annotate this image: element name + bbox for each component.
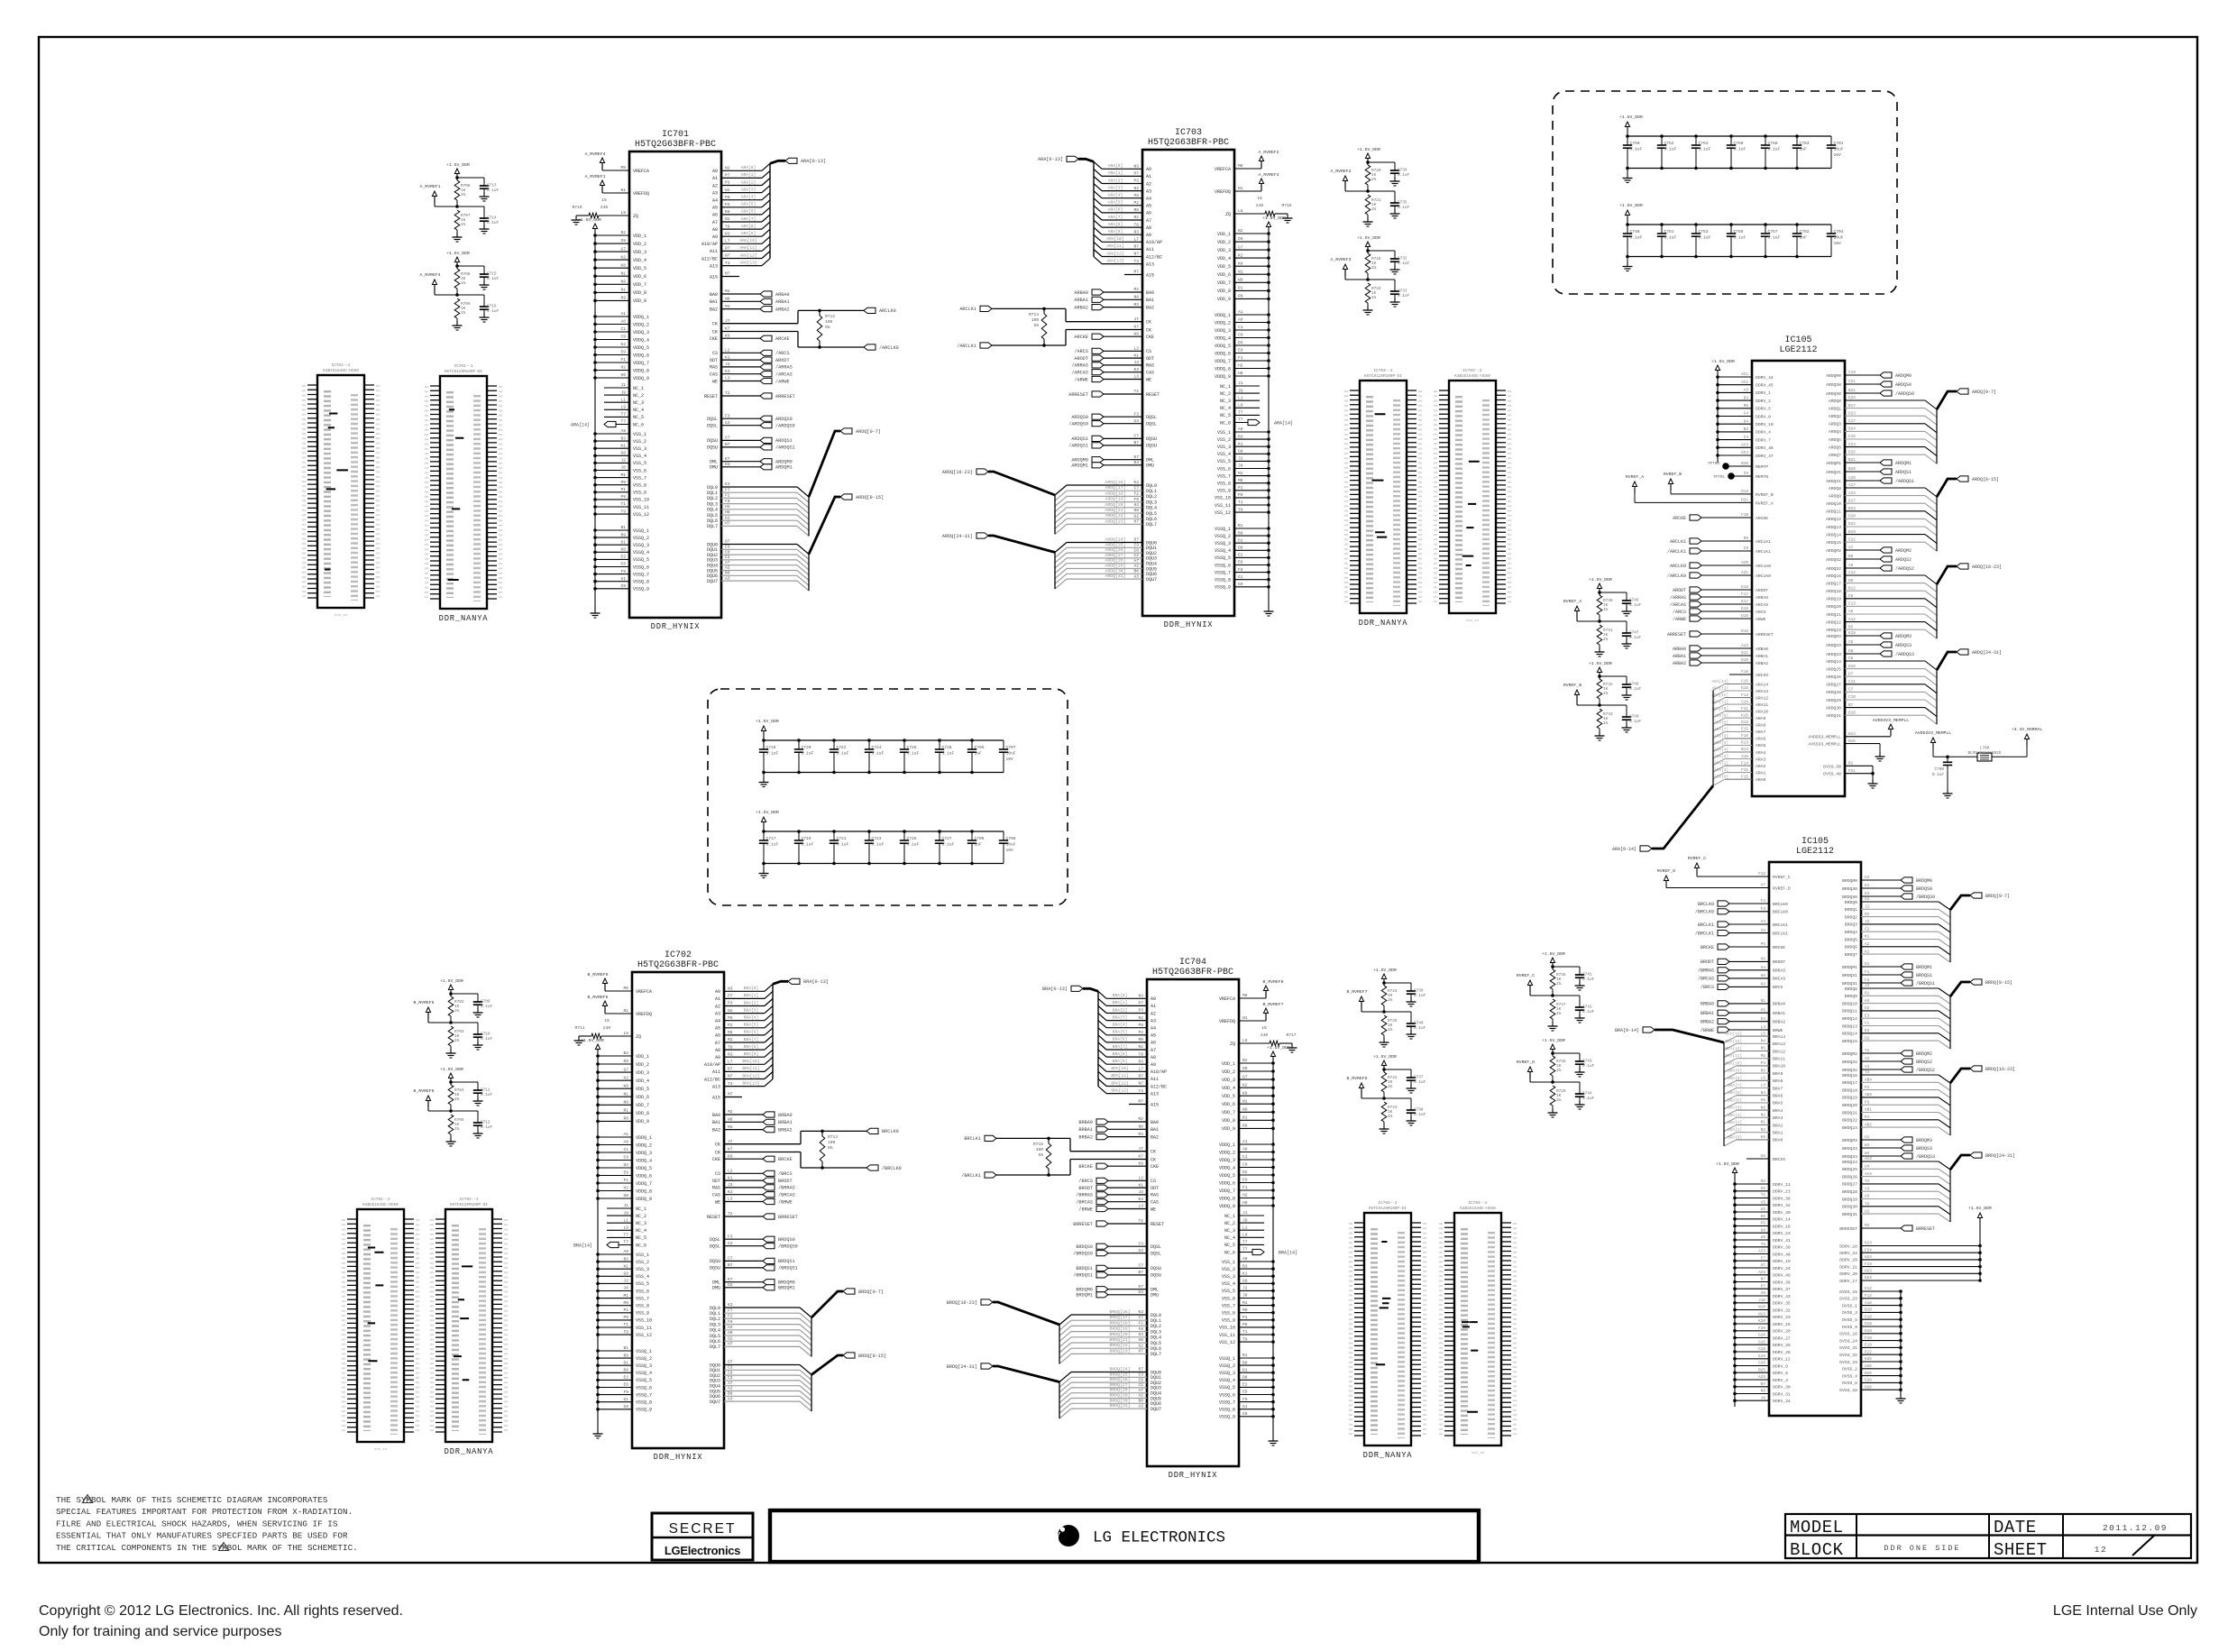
svg-text:AB3: AB3 [1865,1093,1872,1097]
svg-text:N1: N1 [620,271,626,276]
svg-text:ARA[9]: ARA[9] [1714,714,1728,719]
svg-text:DML: DML [1151,1288,1159,1293]
svg-text:C2: C2 [725,555,730,560]
svg-text:E12: E12 [1865,1287,1872,1291]
svg-text:N3: N3 [1133,164,1139,170]
svg-text:BRA[14]: BRA[14] [573,1243,592,1248]
svg-text:IC704--1: IC704--1 [1378,1201,1397,1206]
svg-text:DQSL: DQSL [1146,415,1157,420]
svg-text:VDD_3: VDD_3 [636,1070,649,1076]
svg-text:DQSU: DQSU [710,1259,720,1264]
svg-text:BRA[2]: BRA[2] [1113,1007,1128,1013]
svg-text:CAS: CAS [1146,371,1154,376]
svg-text:H6: H6 [1761,958,1766,962]
svg-text:VSS_9: VSS_9 [1217,489,1231,494]
svg-text:P6: P6 [1761,942,1766,947]
svg-text:5%: 5% [1033,323,1039,328]
svg-text:C704: C704 [1834,229,1844,234]
svg-text:B2: B2 [623,1051,628,1056]
svg-text:M1: M1 [1238,471,1243,476]
svg-text:BRDQM0: BRDQM0 [1842,878,1857,884]
svg-text:A2: A2 [1146,181,1151,187]
svg-text:M7: M7 [728,1092,733,1097]
svg-text:P2: P2 [725,202,730,207]
svg-text:VSSQ_4: VSSQ_4 [1215,548,1231,554]
svg-text:VSS_8: VSS_8 [633,483,646,489]
svg-text:VDDQ_3: VDDQ_3 [633,330,649,335]
svg-text:0.1uF: 0.1uF [1398,206,1410,210]
svg-text:LGE2112: LGE2112 [1796,847,1834,857]
svg-text:VDDQ_7: VDDQ_7 [1219,1189,1235,1194]
svg-text:D3: D3 [728,1282,733,1288]
svg-text:D26: D26 [1865,1385,1872,1390]
svg-text:P8: P8 [1138,1023,1143,1028]
svg-text:VSS_1: VSS_1 [636,1253,649,1258]
svg-text:DQU7: DQU7 [707,579,718,584]
svg-text:240: 240 [1256,203,1264,208]
svg-text:A1: A1 [1151,1004,1156,1009]
svg-text:R8: R8 [725,209,730,215]
svg-text:ARBA2: ARBA2 [775,307,790,312]
svg-text:DDRV_16: DDRV_16 [1839,1244,1857,1249]
svg-text:F15: F15 [1741,775,1748,779]
svg-text:NC_4: NC_4 [1224,1235,1235,1241]
svg-text:N7: N7 [725,253,730,259]
svg-text:ARDQ13: ARDQ13 [1826,525,1841,530]
svg-text:ARDQ[16]: ARDQ[16] [1105,480,1125,485]
svg-text:RVREF_B: RVREF_B [1756,492,1774,498]
svg-text:BRDQ[28]: BRDQ[28] [1109,1388,1130,1393]
svg-text:B_RVREF8: B_RVREF8 [1262,979,1283,985]
svg-text:ARA12: ARA12 [1756,695,1768,701]
svg-text:A4: A4 [712,198,718,204]
svg-text:VSS_6: VSS_6 [1217,466,1231,472]
svg-text:DDRV_37: DDRV_37 [1773,1287,1791,1292]
svg-text:N1: N1 [623,1092,628,1097]
svg-text:ARCKE: ARCKE [1756,516,1768,521]
svg-text:VDDQ_5: VDDQ_5 [636,1166,652,1171]
svg-text:J7: J7 [1138,1146,1143,1152]
svg-text:BRDQ[24]: BRDQ[24] [1109,1367,1130,1372]
svg-text:E2: E2 [1238,553,1243,558]
svg-text:CK: CK [1146,320,1151,326]
svg-text:ARA[13]: ARA[13] [1712,687,1728,692]
svg-text:R1: R1 [620,288,626,293]
svg-text:A12/BC: A12/BC [1146,254,1162,260]
svg-text:DDRV_49: DDRV_49 [1773,1273,1791,1279]
svg-text:MEMTN: MEMTN [1756,474,1768,480]
svg-text:K2: K2 [623,1075,628,1080]
svg-text:/ARWE: /ARWE [1074,377,1088,382]
svg-text:0.1uF: 0.1uF [487,277,500,281]
svg-text:BRCKE: BRCKE [1078,1164,1093,1170]
svg-text:BRDQ4: BRDQ4 [1845,930,1857,935]
svg-text:VSSQ_5: VSSQ_5 [1215,555,1231,561]
svg-text:BRCLK0: BRCLK0 [1773,910,1788,915]
svg-text:J7: J7 [725,318,730,324]
svg-text:DDRV_14: DDRV_14 [1773,1217,1791,1223]
svg-text:0.1uF: 0.1uF [802,842,814,848]
svg-text:L3: L3 [1138,1204,1143,1209]
svg-text:ARDQ0: ARDQ0 [1829,399,1841,404]
svg-text:R710: R710 [572,205,582,210]
svg-text:100: 100 [1031,317,1040,323]
svg-text:RVREF_B: RVREF_B [1563,683,1581,688]
svg-text:BRA[14]: BRA[14] [1726,1032,1742,1037]
svg-text:B1: B1 [623,1345,628,1351]
svg-text:N2: N2 [728,1008,733,1014]
svg-text:G18: G18 [1758,1347,1765,1352]
svg-text:A3: A3 [1151,1018,1156,1023]
svg-text:DDRV_36: DDRV_36 [1773,1280,1791,1285]
svg-text:BRA[13]: BRA[13] [1111,1088,1128,1093]
svg-text:ARDQS1: ARDQS1 [1071,436,1088,442]
svg-text:DDRV_28: DDRV_28 [1839,1271,1857,1277]
svg-text:C9: C9 [620,335,626,340]
svg-text:BRDQS3: BRDQS3 [1842,1154,1857,1160]
svg-text:F20: F20 [1758,1326,1765,1331]
svg-text:J2: J2 [1865,920,1870,924]
svg-text:DQL0: DQL0 [707,485,718,491]
svg-text:B21: B21 [1848,389,1856,393]
svg-text:C753: C753 [1699,229,1709,234]
svg-text:J2: J2 [1242,1286,1248,1291]
svg-text:N9: N9 [620,280,626,285]
svg-text:ARA[11]: ARA[11] [739,245,756,251]
svg-text:R2: R2 [1133,215,1139,220]
svg-text:ARA[14]: ARA[14] [1712,680,1728,684]
svg-text:BRDQ[20]: BRDQ[20] [1109,1332,1130,1337]
svg-text:0.1uF: 0.1uF [907,842,920,848]
svg-text:ARDQS2: ARDQS2 [1826,557,1841,563]
svg-text:1%: 1% [454,1039,460,1043]
svg-text:ARCSX: ARCSX [1756,673,1768,678]
svg-text:J1: J1 [1242,1210,1248,1216]
svg-text:/ARCS: /ARCS [1074,349,1088,354]
svg-text:A9: A9 [620,428,626,434]
svg-text:DDRV_2: DDRV_2 [1756,399,1771,404]
svg-text:A3: A3 [1138,1403,1143,1409]
svg-text:A5: A5 [1146,204,1151,209]
svg-text:BRWE: BRWE [1773,1028,1783,1033]
svg-text:D1: D1 [620,539,626,545]
svg-text:VSSQ_8: VSSQ_8 [636,1400,652,1406]
svg-text:1%: 1% [1371,178,1377,182]
svg-text:A2: A2 [728,1386,733,1391]
svg-text:10V: 10V [1834,241,1842,246]
svg-text:RVREF_C: RVREF_C [1688,856,1706,861]
svg-text:K4B2G1646C-HCK0: K4B2G1646C-HCK0 [362,1203,399,1207]
svg-text:BRRESET: BRRESET [1916,1226,1935,1232]
svg-text:A7: A7 [1138,1388,1143,1393]
svg-text:DDRV_40: DDRV_40 [1773,1210,1791,1216]
svg-text:BRDQ2: BRDQ2 [1845,914,1857,920]
svg-text:1uF: 1uF [1800,147,1808,152]
svg-text:D2: D2 [620,342,626,347]
svg-text:ARDQ[24-31]: ARDQ[24-31] [942,534,973,539]
svg-text:A21: A21 [1741,571,1748,575]
svg-text:BRDQS2: BRDQS2 [1842,1068,1857,1073]
svg-text:BRA[0-13]: BRA[0-13] [1042,987,1068,992]
svg-text:BA0: BA0 [1146,290,1154,296]
svg-text:A1: A1 [1865,897,1870,902]
svg-text:J8: J8 [1242,1293,1248,1299]
svg-text:/ARCLK0: /ARCLK0 [1667,574,1686,579]
svg-text:NC_4: NC_4 [1220,406,1231,411]
svg-text:DDRV_31: DDRV_31 [1773,1391,1791,1397]
svg-text:A0: A0 [1146,167,1151,172]
svg-text:DDRV_39: DDRV_39 [1773,1245,1791,1251]
svg-text:NC_4: NC_4 [636,1228,646,1234]
svg-text:VREFDQ: VREFDQ [633,191,649,197]
svg-text:A25: A25 [1758,1375,1765,1380]
svg-text:E9: E9 [1238,348,1243,353]
svg-text:R1: R1 [1865,992,1870,996]
svg-text:A6: A6 [1151,1041,1156,1046]
svg-text:DVSS_3: DVSS_3 [1842,1310,1857,1316]
svg-text:B_RVREF6: B_RVREF6 [413,1088,434,1094]
svg-text:BRA[5]: BRA[5] [1113,1030,1128,1035]
svg-text:ARA[9]: ARA[9] [741,231,756,236]
svg-text:1%: 1% [454,1097,460,1102]
svg-text:DQL5: DQL5 [1151,1341,1161,1346]
svg-text:0.1uF: 0.1uF [1664,147,1677,152]
svg-text:DDR_HYNIX: DDR_HYNIX [1169,1471,1218,1480]
svg-text:D8: D8 [620,547,626,553]
svg-text:BRDQ0: BRDQ0 [1845,900,1857,905]
svg-text:AB4: AB4 [1865,1078,1872,1083]
svg-text:VSS_2: VSS_2 [636,1260,649,1265]
svg-text:AC1: AC1 [1741,372,1748,377]
svg-text:ARDQ8: ARDQ8 [1829,486,1841,491]
svg-text:DDRV_17: DDRV_17 [1839,1279,1857,1284]
svg-text:VDD_6: VDD_6 [1222,1102,1235,1107]
svg-text:VSS_4: VSS_4 [636,1274,649,1280]
svg-text:J7: J7 [728,1139,733,1144]
svg-text:ARWE: ARWE [1756,617,1765,622]
svg-text:0.1uF: 0.1uF [1629,636,1642,640]
svg-text:NC_6: NC_6 [1224,1250,1235,1255]
svg-text:VDDQ_4: VDDQ_4 [1215,335,1231,341]
svg-text:K4: K4 [1865,884,1870,888]
svg-text:A_RVREF4: A_RVREF4 [584,151,605,157]
svg-text:L1: L1 [623,1217,628,1223]
svg-text:/BRDQS0: /BRDQS0 [1916,895,1935,900]
svg-text:VSSQ_7: VSSQ_7 [1219,1400,1235,1405]
svg-text:A9: A9 [1151,1062,1156,1068]
svg-text:R716: R716 [1281,203,1291,208]
svg-text:C24: C24 [1848,443,1856,447]
svg-text:ARODT: ARODT [1673,588,1686,593]
svg-text:G5: G5 [1761,1154,1766,1159]
svg-text:M1: M1 [1242,1300,1248,1306]
svg-text:BRDQ12: BRDQ12 [1842,1016,1857,1022]
svg-text:ARA5: ARA5 [1756,743,1765,748]
svg-text:IC701--2: IC701--2 [331,363,350,368]
svg-text:ARBA0: ARBA0 [1673,647,1686,652]
svg-text:T7: T7 [1238,410,1243,416]
svg-text:1%: 1% [454,1127,460,1132]
svg-text:K25: K25 [1865,1357,1872,1362]
svg-text:V4: V4 [1761,920,1766,924]
svg-text:M2: M2 [728,1109,733,1115]
svg-text:SECRET: SECRET [669,1521,737,1537]
svg-text:BRBA1: BRBA1 [1701,1011,1714,1016]
svg-text:L3: L3 [1761,1084,1766,1088]
svg-text:B25: B25 [1758,1369,1765,1373]
svg-text:+1.5V_DDR: +1.5V_DDR [1968,1206,1992,1211]
svg-text:K24: K24 [1865,1276,1872,1280]
svg-text:DDR_NANYA: DDR_NANYA [445,1447,494,1456]
svg-text:N3: N3 [1761,1128,1766,1133]
svg-text:ZQ: ZQ [633,214,638,219]
svg-text:VSSQ_5: VSSQ_5 [1219,1385,1235,1390]
svg-text:K4B2G1646C-HCK0: K4B2G1646C-HCK0 [1454,374,1490,379]
svg-text:R2: R2 [1138,1044,1143,1050]
svg-text:U5: U5 [1761,1207,1766,1212]
svg-text:BRA13: BRA13 [1773,1042,1785,1047]
svg-text:DQL7: DQL7 [1146,522,1157,528]
svg-text:VDD_9: VDD_9 [633,298,646,304]
svg-text:A10/AP: A10/AP [1146,240,1162,245]
svg-text:C712: C712 [481,1121,490,1125]
svg-text:D1: D1 [1242,1367,1248,1372]
svg-text:BRODT: BRODT [1078,1186,1093,1191]
svg-text:P3: P3 [1133,179,1139,184]
svg-text:BA1: BA1 [710,299,718,305]
svg-text:RVREF_A: RVREF_A [1626,474,1644,480]
svg-text:DDRV_45: DDRV_45 [1756,383,1774,389]
svg-text:A10/AP: A10/AP [704,1062,720,1068]
svg-text:DDRV_29: DDRV_29 [1839,1258,1857,1263]
svg-text:R8: R8 [1138,1037,1143,1042]
svg-text:T1: T1 [620,501,626,507]
svg-text:N7: N7 [1133,252,1139,257]
svg-text:A3: A3 [1146,188,1151,194]
svg-text:P2: P2 [1865,1086,1870,1090]
svg-text:C12: C12 [1848,571,1856,575]
svg-text:P1: P1 [1242,1315,1248,1320]
svg-text:R9: R9 [623,1116,628,1122]
svg-text:10V: 10V [1006,757,1014,762]
svg-text:BRA[7]: BRA[7] [1728,1084,1742,1088]
svg-text:100: 100 [828,1140,836,1145]
svg-text:VDD_3: VDD_3 [1217,248,1231,253]
svg-text:Y1: Y1 [1865,1049,1870,1053]
svg-text:ARA[3]: ARA[3] [1108,185,1123,190]
svg-text:A4: A4 [715,1019,720,1024]
svg-text:0.1uF: 0.1uF [487,221,500,225]
svg-text:ARDQ19: ARDQ19 [1826,597,1841,602]
svg-text:BRCSX: BRCSX [1773,1157,1785,1162]
svg-text:0.1uF: 0.1uF [1398,294,1410,298]
svg-text:N8: N8 [1133,295,1139,300]
svg-text:VSSQ_3: VSSQ_3 [1219,1371,1235,1376]
svg-text:DQSL: DQSL [707,417,718,422]
svg-text:10V: 10V [1834,152,1842,158]
svg-text:P5: P5 [1761,1008,1766,1013]
svg-text:ARA[0]: ARA[0] [1714,776,1728,780]
svg-text:VSSQ_2: VSSQ_2 [1219,1363,1235,1369]
svg-text:VSS_1: VSS_1 [1217,430,1231,436]
svg-text:+1.5V_DDR: +1.5V_DDR [1542,951,1565,957]
svg-text:D9: D9 [623,1059,628,1064]
svg-text:P8: P8 [1133,193,1139,198]
svg-text:ARA[6]: ARA[6] [1108,207,1123,213]
svg-text:P9: P9 [620,494,626,500]
svg-text:THE SYMBOL MARK OF THIS S: THE SYMBOL MARK OF THIS SCHEMETIC DIAGRA… [56,1495,328,1505]
svg-text:M9: M9 [623,1300,628,1306]
svg-text:BRDQM2: BRDQM2 [1916,1051,1932,1057]
svg-text:M8: M8 [1238,163,1243,169]
svg-text:T6: T6 [1761,1243,1766,1247]
svg-text:BRDQS2: BRDQS2 [1842,1060,1857,1065]
svg-text:BRDQ[27]: BRDQ[27] [1109,1382,1130,1388]
svg-text:DVSS_5: DVSS_5 [1842,1317,1857,1323]
svg-text:P7: P7 [1138,1001,1143,1006]
svg-text:BRDQS1: BRDQS1 [1842,981,1857,987]
svg-text:T9: T9 [1238,507,1243,512]
svg-text:C3: C3 [1133,543,1139,548]
svg-text:G2: G2 [728,1335,733,1341]
svg-text:F24: F24 [1865,1248,1872,1253]
svg-text:VSS_3: VSS_3 [1222,1274,1235,1280]
svg-text:B17: B17 [1848,404,1856,408]
svg-text:U6: U6 [1761,1235,1766,1240]
svg-text:BRA[0]: BRA[0] [744,986,759,991]
svg-text:VDDQ_8: VDDQ_8 [636,1189,652,1194]
svg-text:G3: G3 [725,420,730,426]
svg-text:ARCLK1: ARCLK1 [959,307,976,312]
svg-text:H3: H3 [728,1325,733,1330]
svg-text:DDRV_19: DDRV_19 [1773,1259,1791,1264]
svg-text:M3: M3 [1133,302,1139,307]
svg-text:DDR_HYNIX: DDR_HYNIX [654,1453,703,1462]
svg-text:VDDQ_5: VDDQ_5 [1219,1173,1235,1179]
svg-text:C7: C7 [1848,688,1854,693]
svg-text:B_RVREF7: B_RVREF7 [1262,1002,1283,1007]
svg-text:0.1uF: 0.1uF [1664,235,1677,241]
svg-text:C756: C756 [1734,141,1744,146]
svg-text:G1: G1 [623,1397,628,1402]
svg-text:A2: A2 [715,1004,720,1009]
svg-text:C720: C720 [802,745,811,750]
svg-text:1%: 1% [461,311,466,316]
svg-text:ARDQ27: ARDQ27 [1826,683,1841,688]
svg-text:C732: C732 [1398,257,1407,262]
svg-text:C7: C7 [1133,434,1139,439]
svg-text:K4B2G1646C-HCK0: K4B2G1646C-HCK0 [323,369,359,373]
svg-text:ZQ: ZQ [1225,212,1231,217]
svg-text:VDD_7: VDD_7 [633,282,646,288]
svg-text:A7: A7 [1848,546,1854,550]
svg-text:VSS_5: VSS_5 [636,1281,649,1287]
svg-text:K8: K8 [1242,1090,1248,1096]
svg-text:/BRCS: /BRCS [778,1171,793,1177]
svg-text:VDD_1: VDD_1 [633,234,646,239]
svg-text:G2: G2 [1138,1343,1143,1348]
svg-text:12: 12 [2095,1545,2107,1555]
svg-text:BRA[13]: BRA[13] [1726,1040,1742,1044]
svg-text:ARCLK0: ARCLK0 [879,308,896,314]
svg-text:ARDQ30: ARDQ30 [1826,705,1841,711]
svg-text:/BRCLK1: /BRCLK1 [961,1173,981,1179]
svg-text:F1: F1 [620,357,626,363]
svg-text:/ARCS: /ARCS [775,351,790,356]
svg-text:VDD_5: VDD_5 [1222,1094,1235,1099]
svg-text:T3: T3 [1138,1088,1143,1094]
svg-text:D3: D3 [725,462,730,467]
